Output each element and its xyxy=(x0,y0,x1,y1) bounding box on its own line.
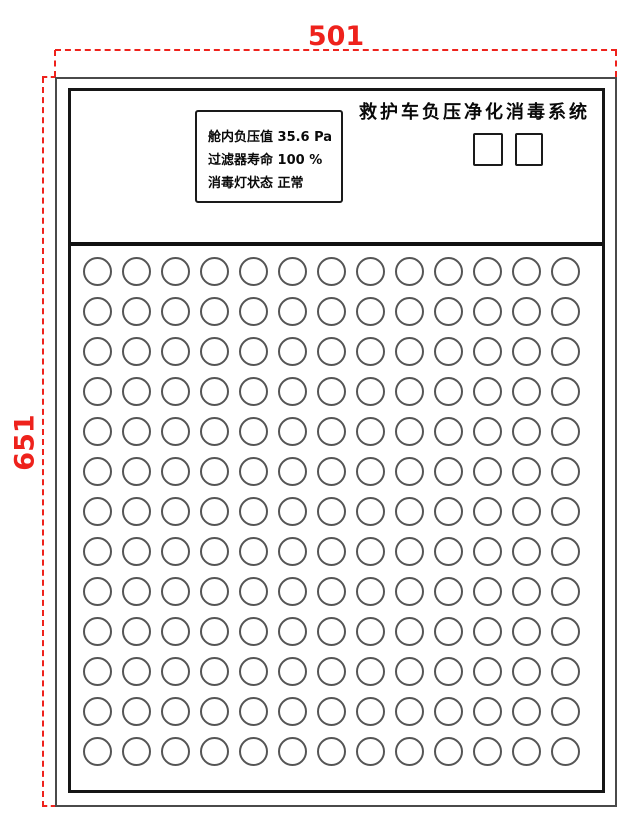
vent-hole xyxy=(434,257,463,286)
vent-hole xyxy=(551,417,580,446)
vent-hole xyxy=(395,297,424,326)
uv-lamp-status-readout: 消毒灯状态 正常 xyxy=(208,172,341,195)
vent-hole xyxy=(122,377,151,406)
vent-hole xyxy=(239,377,268,406)
filter-life-readout: 过滤器寿命 100 % xyxy=(208,149,341,172)
vent-hole xyxy=(122,297,151,326)
vent-hole xyxy=(356,417,385,446)
vent-hole xyxy=(317,577,346,606)
panel-button-2 xyxy=(515,133,543,166)
vent-hole xyxy=(317,617,346,646)
vent-hole xyxy=(512,297,541,326)
vent-hole xyxy=(161,537,190,566)
vent-hole xyxy=(317,737,346,766)
vent-hole xyxy=(317,417,346,446)
vent-hole xyxy=(434,697,463,726)
vent-hole xyxy=(473,617,502,646)
vent-hole xyxy=(200,577,229,606)
vent-hole xyxy=(317,377,346,406)
vent-hole xyxy=(239,297,268,326)
vent-hole xyxy=(239,497,268,526)
vent-hole xyxy=(239,337,268,366)
vent-hole xyxy=(278,657,307,686)
vent-hole xyxy=(278,697,307,726)
vent-hole xyxy=(551,737,580,766)
vent-hole-grid xyxy=(83,257,580,766)
vent-hole xyxy=(161,577,190,606)
vent-hole xyxy=(161,497,190,526)
vent-hole xyxy=(317,497,346,526)
vent-hole xyxy=(356,497,385,526)
vent-hole xyxy=(161,657,190,686)
vent-hole xyxy=(200,257,229,286)
vent-hole xyxy=(434,537,463,566)
vent-hole xyxy=(83,577,112,606)
vent-hole xyxy=(83,377,112,406)
vent-hole xyxy=(161,337,190,366)
vent-hole xyxy=(473,737,502,766)
vent-hole xyxy=(122,537,151,566)
vent-hole xyxy=(473,657,502,686)
height-dimension-bottom-extension xyxy=(42,805,56,807)
vent-hole xyxy=(161,617,190,646)
vent-hole xyxy=(200,617,229,646)
vent-hole xyxy=(161,697,190,726)
drawing-canvas: 501 651 救护车负压净化消毒系统 舱内负压值 35.6 Pa 过滤器寿命 … xyxy=(0,0,643,837)
vent-hole xyxy=(83,337,112,366)
vent-hole xyxy=(122,657,151,686)
vent-hole xyxy=(356,617,385,646)
vent-hole xyxy=(551,577,580,606)
vent-hole xyxy=(551,257,580,286)
vent-hole xyxy=(434,457,463,486)
panel-button-1 xyxy=(473,133,503,166)
vent-hole xyxy=(395,537,424,566)
vent-hole xyxy=(83,297,112,326)
vent-hole xyxy=(278,337,307,366)
vent-hole xyxy=(434,417,463,446)
status-display-screen: 舱内负压值 35.6 Pa 过滤器寿命 100 % 消毒灯状态 正常 xyxy=(195,110,343,203)
vent-hole xyxy=(278,297,307,326)
vent-hole xyxy=(83,257,112,286)
vent-hole xyxy=(512,457,541,486)
vent-hole xyxy=(239,537,268,566)
vent-hole xyxy=(278,737,307,766)
vent-hole xyxy=(83,697,112,726)
vent-hole xyxy=(239,257,268,286)
vent-hole xyxy=(512,417,541,446)
vent-hole xyxy=(395,257,424,286)
vent-hole xyxy=(551,457,580,486)
vent-hole xyxy=(434,297,463,326)
vent-hole xyxy=(473,377,502,406)
vent-hole xyxy=(200,417,229,446)
vent-hole xyxy=(83,497,112,526)
vent-hole xyxy=(200,297,229,326)
vent-hole xyxy=(239,417,268,446)
vent-hole xyxy=(473,257,502,286)
vent-hole xyxy=(473,417,502,446)
vent-hole xyxy=(551,617,580,646)
vent-hole xyxy=(122,257,151,286)
vent-hole xyxy=(434,337,463,366)
vent-hole xyxy=(395,337,424,366)
vent-hole xyxy=(122,497,151,526)
height-dimension-line xyxy=(42,77,44,807)
vent-hole xyxy=(473,457,502,486)
vent-hole xyxy=(278,257,307,286)
vent-hole xyxy=(122,697,151,726)
vent-hole xyxy=(473,337,502,366)
vent-hole xyxy=(161,457,190,486)
vent-hole xyxy=(395,737,424,766)
vent-hole xyxy=(122,417,151,446)
height-dimension-label-wrap: 651 xyxy=(8,77,42,807)
vent-hole xyxy=(356,457,385,486)
vent-hole xyxy=(278,577,307,606)
vent-hole xyxy=(356,657,385,686)
height-dimension-label: 651 xyxy=(10,414,41,470)
vent-hole xyxy=(356,377,385,406)
vent-hole xyxy=(356,697,385,726)
vent-hole xyxy=(512,337,541,366)
vent-hole xyxy=(356,537,385,566)
vent-hole xyxy=(200,737,229,766)
vent-hole xyxy=(278,457,307,486)
vent-hole xyxy=(434,617,463,646)
vent-hole xyxy=(239,617,268,646)
vent-hole xyxy=(278,617,307,646)
vent-hole xyxy=(161,737,190,766)
vent-hole xyxy=(473,297,502,326)
vent-hole xyxy=(434,377,463,406)
system-title: 救护车负压净化消毒系统 xyxy=(359,98,590,124)
vent-hole xyxy=(161,257,190,286)
cabin-pressure-readout: 舱内负压值 35.6 Pa xyxy=(208,126,341,149)
vent-hole xyxy=(551,697,580,726)
vent-hole xyxy=(239,657,268,686)
vent-hole xyxy=(356,257,385,286)
vent-hole xyxy=(512,577,541,606)
vent-hole xyxy=(83,737,112,766)
vent-hole xyxy=(434,577,463,606)
vent-hole xyxy=(122,577,151,606)
vent-hole xyxy=(395,577,424,606)
panel-header: 救护车负压净化消毒系统 舱内负压值 35.6 Pa 过滤器寿命 100 % 消毒… xyxy=(71,91,602,246)
vent-hole xyxy=(83,657,112,686)
vent-hole xyxy=(161,377,190,406)
vent-hole xyxy=(278,537,307,566)
vent-hole xyxy=(317,657,346,686)
vent-hole xyxy=(473,697,502,726)
vent-hole xyxy=(317,697,346,726)
vent-hole xyxy=(395,377,424,406)
vent-hole xyxy=(200,657,229,686)
vent-hole xyxy=(434,657,463,686)
panel-outer-frame: 救护车负压净化消毒系统 舱内负压值 35.6 Pa 过滤器寿命 100 % 消毒… xyxy=(55,77,617,807)
vent-hole xyxy=(83,457,112,486)
vent-hole xyxy=(122,457,151,486)
vent-hole xyxy=(278,417,307,446)
vent-hole xyxy=(278,497,307,526)
vent-hole xyxy=(395,617,424,646)
width-dimension-right-extension xyxy=(615,50,617,77)
vent-hole xyxy=(239,577,268,606)
vent-hole xyxy=(239,457,268,486)
vent-hole xyxy=(200,377,229,406)
vent-hole xyxy=(83,617,112,646)
vent-hole xyxy=(551,537,580,566)
vent-hole xyxy=(200,337,229,366)
vent-hole xyxy=(161,297,190,326)
vent-hole xyxy=(551,337,580,366)
height-dimension-top-extension xyxy=(42,76,56,78)
vent-hole xyxy=(317,457,346,486)
vent-hole xyxy=(356,577,385,606)
vent-hole xyxy=(122,617,151,646)
vent-hole xyxy=(512,537,541,566)
vent-hole xyxy=(83,417,112,446)
panel-inner-frame: 救护车负压净化消毒系统 舱内负压值 35.6 Pa 过滤器寿命 100 % 消毒… xyxy=(68,88,605,793)
vent-hole xyxy=(395,697,424,726)
vent-hole xyxy=(512,737,541,766)
vent-hole xyxy=(512,617,541,646)
vent-hole xyxy=(356,337,385,366)
vent-hole xyxy=(512,657,541,686)
vent-hole xyxy=(512,497,541,526)
vent-hole xyxy=(122,337,151,366)
vent-hole xyxy=(200,697,229,726)
vent-hole xyxy=(434,497,463,526)
vent-hole xyxy=(395,417,424,446)
width-dimension-label: 501 xyxy=(55,22,617,51)
vent-hole xyxy=(551,377,580,406)
vent-hole xyxy=(278,377,307,406)
vent-hole xyxy=(317,337,346,366)
vent-hole xyxy=(551,657,580,686)
vent-hole xyxy=(395,657,424,686)
vent-hole xyxy=(551,297,580,326)
vent-hole xyxy=(317,257,346,286)
vent-hole xyxy=(473,497,502,526)
vent-hole xyxy=(434,737,463,766)
vent-hole xyxy=(356,297,385,326)
width-dimension-left-extension xyxy=(54,50,56,77)
vent-hole xyxy=(317,297,346,326)
vent-hole xyxy=(239,737,268,766)
vent-hole xyxy=(512,697,541,726)
vent-hole xyxy=(200,457,229,486)
vent-hole xyxy=(473,577,502,606)
vent-hole xyxy=(395,457,424,486)
vent-hole xyxy=(200,497,229,526)
vent-hole xyxy=(473,537,502,566)
vent-hole xyxy=(512,377,541,406)
vent-hole xyxy=(317,537,346,566)
vent-hole xyxy=(395,497,424,526)
vent-hole xyxy=(551,497,580,526)
vent-hole xyxy=(239,697,268,726)
vent-hole xyxy=(161,417,190,446)
vent-hole xyxy=(83,537,112,566)
vent-hole xyxy=(512,257,541,286)
vent-hole xyxy=(356,737,385,766)
vent-hole xyxy=(122,737,151,766)
vent-hole xyxy=(200,537,229,566)
